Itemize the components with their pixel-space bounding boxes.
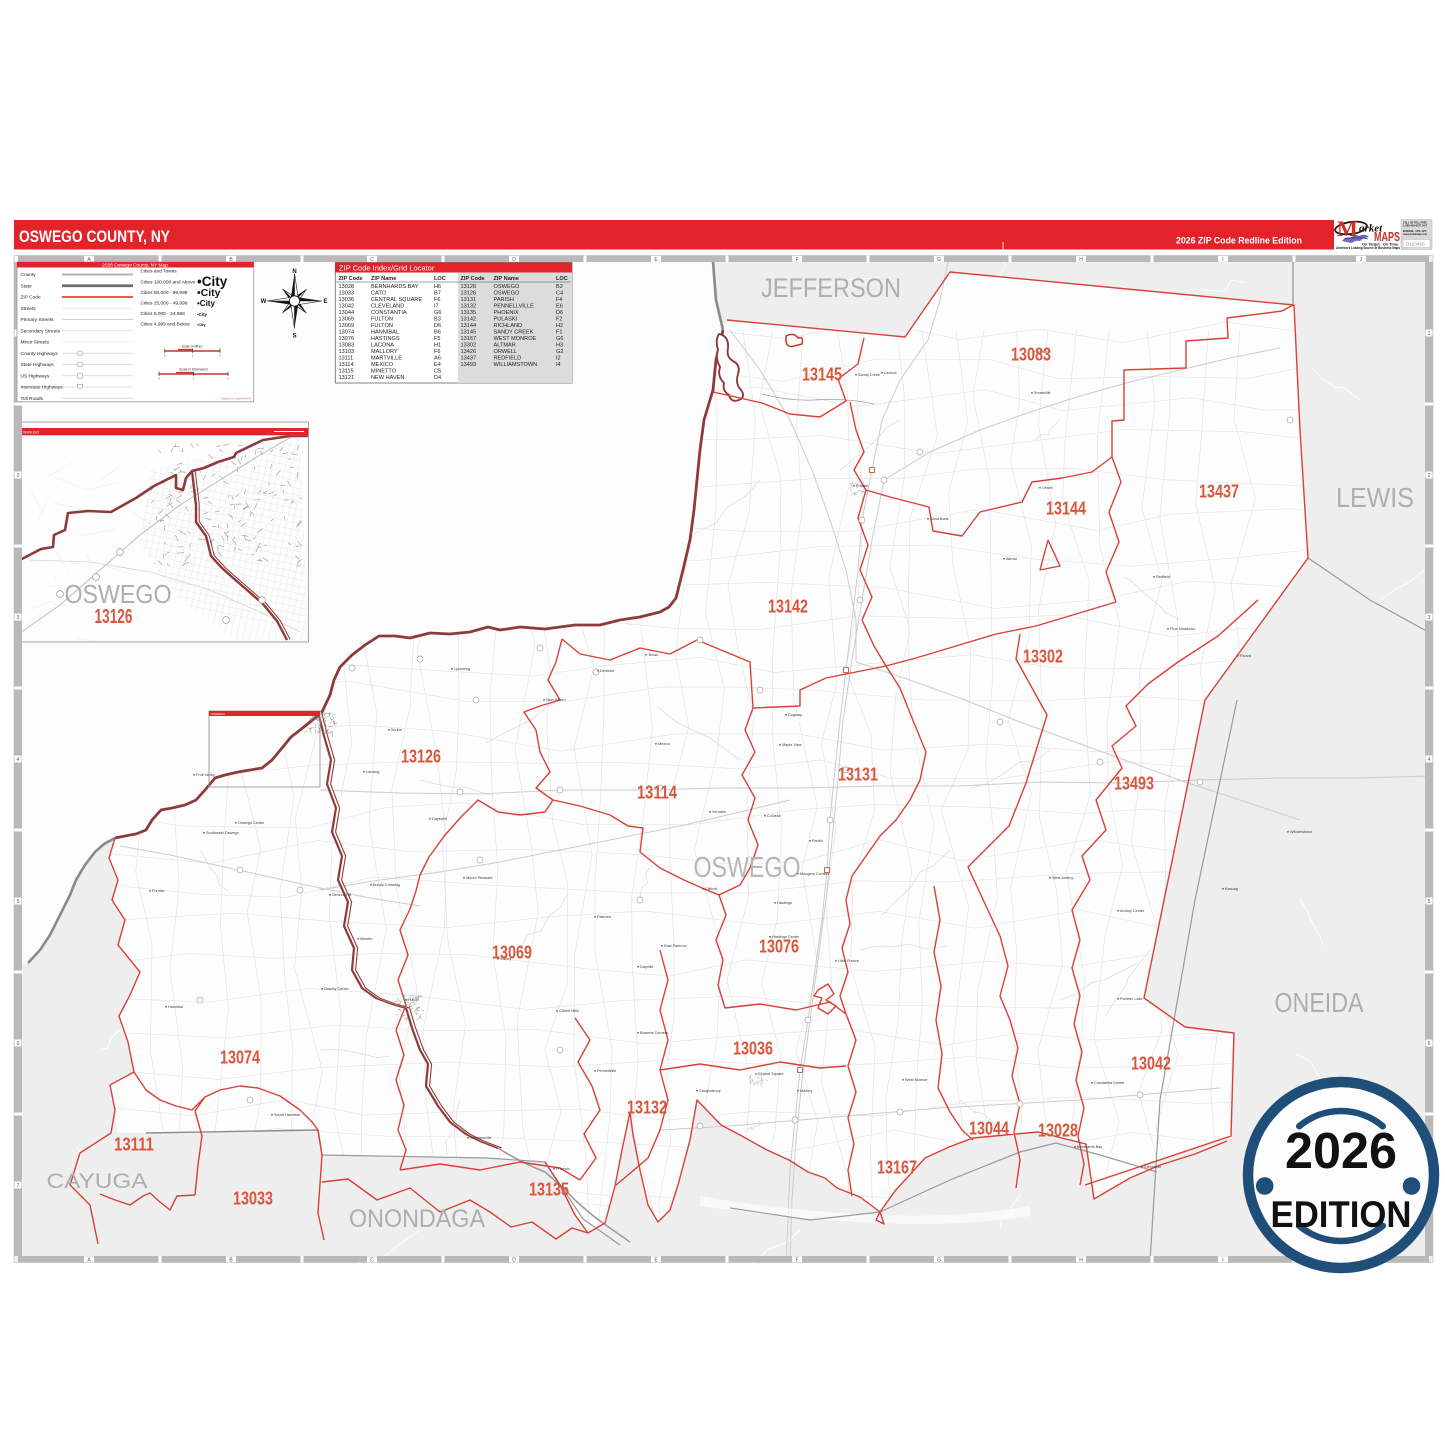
- svg-text:Bernhards Bay: Bernhards Bay: [1077, 1145, 1102, 1149]
- svg-text:13044: 13044: [339, 310, 355, 316]
- svg-text:Mungers Corners: Mungers Corners: [800, 872, 829, 876]
- svg-text:CAYUGA: CAYUGA: [47, 1170, 148, 1193]
- svg-text:PARISH: PARISH: [494, 297, 514, 303]
- svg-text:Streets: Streets: [21, 306, 37, 312]
- svg-text:Maple View: Maple View: [782, 743, 802, 747]
- svg-text:13142: 13142: [461, 316, 477, 322]
- svg-text:West Monroe: West Monroe: [905, 1078, 928, 1082]
- svg-text:13044: 13044: [969, 1119, 1009, 1139]
- svg-text:D123456: D123456: [1406, 242, 1425, 247]
- svg-text:Hastings: Hastings: [777, 901, 792, 905]
- svg-text:F2: F2: [556, 316, 563, 322]
- svg-text:13069: 13069: [492, 943, 532, 963]
- svg-text:CLEVELAND: CLEVELAND: [371, 303, 404, 309]
- svg-text:Seneca Hill: Seneca Hill: [332, 893, 351, 897]
- svg-text:Demster: Demster: [600, 669, 615, 673]
- svg-text:West Amboy: West Amboy: [1052, 876, 1073, 880]
- svg-text:•City: •City: [197, 323, 206, 327]
- svg-text:PHOENIX: PHOENIX: [494, 310, 519, 316]
- svg-text:13042: 13042: [1131, 1054, 1171, 1074]
- svg-text:I: I: [1222, 1257, 1223, 1263]
- svg-text:B3: B3: [434, 316, 441, 322]
- svg-text:New Haven: New Haven: [546, 698, 566, 702]
- svg-text:13142: 13142: [768, 597, 808, 617]
- svg-text:America's Leading Source of Bu: America's Leading Source of Business Map…: [1336, 246, 1400, 250]
- svg-text:2026 ZIP Code Redline Edition: 2026 ZIP Code Redline Edition: [1176, 236, 1302, 247]
- svg-text:G: G: [937, 257, 941, 263]
- svg-text:C5: C5: [434, 368, 441, 374]
- svg-text:OSWEGO: OSWEGO: [494, 290, 520, 296]
- svg-text:I7: I7: [434, 303, 439, 309]
- svg-text:F: F: [795, 257, 798, 263]
- svg-text:13135: 13135: [529, 1180, 569, 1200]
- svg-text:maps@mktmaps.com: maps@mktmaps.com: [1403, 233, 1428, 236]
- svg-text:•City: •City: [197, 287, 221, 299]
- svg-text:Dugway: Dugway: [788, 713, 802, 717]
- svg-text:Interstate Highways: Interstate Highways: [21, 385, 64, 391]
- svg-text:A6: A6: [434, 355, 441, 361]
- svg-text:OSWEGO: OSWEGO: [494, 284, 520, 290]
- svg-text:13028: 13028: [339, 284, 355, 290]
- svg-text:Gayville: Gayville: [640, 965, 654, 969]
- svg-text:Secondary Streets: Secondary Streets: [21, 328, 61, 334]
- svg-text:13083: 13083: [339, 342, 355, 348]
- svg-text:Mount Pleasant: Mount Pleasant: [466, 876, 493, 880]
- svg-text:B2: B2: [556, 284, 563, 290]
- svg-text:NEW HAVEN: NEW HAVEN: [371, 375, 404, 381]
- svg-text:Colosse: Colosse: [767, 814, 781, 818]
- svg-text:East Palermo: East Palermo: [664, 944, 687, 948]
- svg-text:State Highways: State Highways: [21, 362, 55, 368]
- svg-text:2: 2: [1428, 473, 1431, 479]
- svg-text:Cities 50,000 - 99,999: Cities 50,000 - 99,999: [141, 290, 188, 296]
- svg-text:6: 6: [1428, 1041, 1431, 1047]
- svg-text:13074: 13074: [220, 1048, 260, 1068]
- svg-text:G2: G2: [556, 349, 563, 355]
- svg-text:Furniss: Furniss: [152, 889, 165, 893]
- svg-text:3: 3: [1428, 615, 1431, 621]
- svg-text:13114: 13114: [339, 362, 354, 368]
- svg-text:C: C: [370, 1257, 374, 1263]
- svg-text:13131: 13131: [838, 765, 878, 785]
- svg-text:13076: 13076: [339, 336, 355, 342]
- svg-text:WEST MONROE: WEST MONROE: [494, 336, 537, 342]
- svg-text:13076: 13076: [759, 937, 799, 957]
- svg-text:BERNHARDS BAY: BERNHARDS BAY: [371, 284, 419, 290]
- svg-text:Clifford: Clifford: [705, 887, 717, 891]
- svg-text:13114: 13114: [637, 783, 677, 803]
- svg-text:3: 3: [17, 615, 20, 621]
- svg-text:SANDY CREEK: SANDY CREEK: [494, 329, 534, 335]
- svg-text:MEXICO: MEXICO: [371, 362, 394, 368]
- svg-text:Cities 100,000 and Above: Cities 100,000 and Above: [141, 280, 196, 286]
- svg-text:13167: 13167: [877, 1158, 917, 1178]
- svg-text:Cities 4,999 and Below: Cities 4,999 and Below: [141, 322, 191, 328]
- svg-text:•City: •City: [197, 312, 208, 317]
- svg-text:G6: G6: [434, 310, 441, 316]
- svg-text:D6: D6: [434, 323, 441, 329]
- svg-text:FULTON: FULTON: [371, 316, 393, 322]
- svg-text:Cities 25,000 - 49,999: Cities 25,000 - 49,999: [141, 301, 188, 307]
- svg-text:Amboy Center: Amboy Center: [1120, 909, 1145, 913]
- svg-text:Kasoag: Kasoag: [1225, 887, 1238, 891]
- svg-text:CENTRAL SQUARE: CENTRAL SQUARE: [371, 297, 422, 303]
- svg-text:13144: 13144: [1046, 499, 1086, 519]
- svg-text:Lacona: Lacona: [884, 371, 897, 375]
- svg-text:MALLORY: MALLORY: [371, 349, 398, 355]
- svg-text:13126: 13126: [461, 284, 477, 290]
- svg-text:13069: 13069: [339, 316, 355, 322]
- svg-text:13126: 13126: [401, 747, 441, 767]
- svg-text:HASTINGS: HASTINGS: [371, 336, 400, 342]
- svg-text:Verndon: Verndon: [712, 810, 726, 814]
- svg-text:ORWELL: ORWELL: [494, 349, 518, 355]
- svg-text:WILLIAMSTOWN: WILLIAMSTOWN: [494, 362, 538, 368]
- svg-text:13167: 13167: [461, 336, 477, 342]
- svg-text:Ricard: Ricard: [1240, 654, 1251, 658]
- svg-text:Mexico: Mexico: [658, 742, 670, 746]
- svg-text:13111: 13111: [114, 1135, 154, 1155]
- svg-text:S: S: [292, 334, 296, 340]
- svg-text:designed by MarketMAPS: designed by MarketMAPS: [221, 397, 251, 401]
- svg-text:ONONDAGA: ONONDAGA: [349, 1205, 485, 1233]
- svg-text:13115: 13115: [339, 368, 354, 374]
- svg-text:EDITION: EDITION: [1271, 1194, 1412, 1235]
- svg-text:G: G: [937, 1257, 941, 1263]
- svg-text:Caughdenoy: Caughdenoy: [699, 1089, 721, 1093]
- svg-text:Lycoming: Lycoming: [454, 667, 470, 671]
- svg-text:5: 5: [17, 899, 20, 905]
- svg-text:Cities and Towns: Cities and Towns: [141, 269, 178, 275]
- svg-text:13302: 13302: [461, 342, 477, 348]
- svg-text:H6: H6: [434, 284, 441, 290]
- svg-text:HANNIBAL: HANNIBAL: [371, 329, 399, 335]
- svg-text:Scriba: Scriba: [391, 728, 403, 732]
- svg-text:13135: 13135: [461, 310, 477, 316]
- svg-text:ZIP Name: ZIP Name: [494, 276, 519, 282]
- svg-text:13042: 13042: [339, 303, 355, 309]
- svg-text:OSWEGO: OSWEGO: [21, 430, 39, 435]
- svg-text:LEWIS: LEWIS: [1336, 482, 1414, 513]
- svg-text:F6: F6: [434, 349, 441, 355]
- svg-text:Redfield: Redfield: [1156, 575, 1170, 579]
- svg-text:13132: 13132: [627, 1098, 667, 1118]
- svg-text:13033: 13033: [233, 1189, 273, 1209]
- svg-text:13074: 13074: [339, 329, 355, 335]
- svg-text:13493: 13493: [461, 362, 477, 368]
- svg-text:E6: E6: [556, 303, 563, 309]
- svg-text:2: 2: [17, 473, 20, 479]
- svg-text:D6: D6: [556, 310, 563, 316]
- svg-text:Cities 5,000 - 24,999: Cities 5,000 - 24,999: [141, 311, 186, 317]
- svg-text:MINETTO: MINETTO: [371, 368, 397, 374]
- svg-text:OSWEGO: OSWEGO: [65, 579, 172, 609]
- svg-text:H: H: [1079, 1257, 1083, 1263]
- svg-text:6: 6: [17, 1041, 20, 1047]
- svg-text:RICHLAND: RICHLAND: [494, 323, 523, 329]
- svg-text:Toll Roads: Toll Roads: [21, 396, 44, 402]
- svg-text:Minor Streets: Minor Streets: [21, 340, 50, 346]
- svg-text:PULASKI: PULASKI: [494, 316, 518, 322]
- svg-text:ZIP Code: ZIP Code: [339, 276, 363, 282]
- svg-text:Bowens Corners: Bowens Corners: [640, 1031, 668, 1035]
- svg-text:13036: 13036: [733, 1039, 773, 1059]
- svg-text:13103: 13103: [339, 349, 355, 355]
- svg-text:Panther Lake: Panther Lake: [1120, 997, 1143, 1001]
- svg-text:Bundy Crossing: Bundy Crossing: [373, 883, 400, 887]
- svg-text:F6: F6: [434, 297, 441, 303]
- svg-text:13302: 13302: [1023, 647, 1063, 667]
- svg-text:13111: 13111: [339, 355, 354, 361]
- svg-text:B6: B6: [434, 329, 441, 335]
- svg-text:Phoenix: Phoenix: [556, 1167, 570, 1171]
- svg-text:13036: 13036: [339, 297, 355, 303]
- svg-text:Lansing: Lansing: [366, 770, 379, 774]
- svg-text:Pennellville: Pennellville: [597, 1069, 616, 1073]
- svg-text:ONEIDA: ONEIDA: [1275, 987, 1364, 1018]
- svg-text:Mallory: Mallory: [800, 1089, 812, 1093]
- svg-text:E: E: [323, 299, 327, 305]
- svg-text:County: County: [21, 272, 37, 278]
- svg-text:13126: 13126: [461, 290, 477, 296]
- svg-text:13145: 13145: [802, 365, 842, 385]
- svg-text:D4: D4: [434, 375, 441, 381]
- svg-text:13028: 13028: [1038, 1121, 1078, 1141]
- svg-text:PENNELLVILLE: PENNELLVILLE: [494, 303, 535, 309]
- svg-text:Constantia Center: Constantia Center: [1094, 1081, 1125, 1085]
- svg-text:F: F: [795, 1257, 798, 1263]
- svg-text:13132: 13132: [461, 303, 477, 309]
- svg-text:C: C: [370, 257, 374, 263]
- svg-text:2026: 2026: [1285, 1122, 1397, 1179]
- svg-text:N: N: [292, 269, 296, 275]
- svg-text:W: W: [261, 299, 267, 305]
- svg-text:LACONA: LACONA: [371, 342, 394, 348]
- svg-text:LOC: LOC: [556, 276, 568, 282]
- svg-text:D: D: [512, 1257, 516, 1263]
- svg-text:H3: H3: [556, 342, 563, 348]
- svg-text:Gilbert Mills: Gilbert Mills: [559, 1009, 579, 1013]
- svg-text:H1: H1: [434, 342, 441, 348]
- svg-text:Primary Streets: Primary Streets: [21, 317, 55, 323]
- svg-text:H2: H2: [556, 323, 563, 329]
- svg-text:13437: 13437: [1199, 482, 1239, 502]
- svg-text:B7: B7: [434, 290, 441, 296]
- svg-text:5: 5: [1428, 899, 1431, 905]
- svg-text:Parish: Parish: [812, 839, 823, 843]
- svg-text:ZIP Name: ZIP Name: [371, 276, 396, 282]
- svg-text:FULTON: FULTON: [371, 323, 393, 329]
- svg-text:Central Square: Central Square: [758, 1072, 784, 1076]
- svg-text:CONSTANTIA: CONSTANTIA: [371, 310, 407, 316]
- svg-text:Hannibal: Hannibal: [168, 1005, 183, 1009]
- svg-text:Palermo: Palermo: [597, 915, 611, 919]
- svg-text:ALTMAR: ALTMAR: [494, 342, 516, 348]
- svg-text:Little France: Little France: [838, 959, 859, 963]
- svg-text:2026 Oswego County, NY Map: 2026 Oswego County, NY Map: [102, 263, 168, 269]
- svg-text:State: State: [21, 283, 33, 289]
- svg-text:13437: 13437: [461, 355, 477, 361]
- svg-text:4: 4: [1428, 757, 1431, 763]
- svg-text:13493: 13493: [1114, 774, 1154, 794]
- svg-text:Southwest Oswego: Southwest Oswego: [206, 831, 239, 835]
- svg-text:Smartville: Smartville: [1034, 391, 1051, 395]
- svg-text:13426: 13426: [461, 349, 477, 355]
- svg-text:13144: 13144: [461, 323, 477, 329]
- svg-text:D: D: [512, 257, 516, 263]
- svg-text:MARTVILLE: MARTVILLE: [371, 355, 402, 361]
- svg-text:Fruit Valley: Fruit Valley: [196, 773, 215, 777]
- svg-text:•City: •City: [197, 299, 215, 308]
- svg-text:4: 4: [17, 757, 20, 763]
- svg-text:1-888-434-6277 24/7: 1-888-434-6277 24/7: [1403, 224, 1428, 227]
- svg-text:Hinmansville: Hinmansville: [470, 1136, 492, 1140]
- svg-text:Scale in Kilometers: Scale in Kilometers: [179, 368, 208, 372]
- svg-text:I4: I4: [556, 362, 561, 368]
- svg-text:H: H: [1079, 257, 1083, 263]
- svg-text:Pulaski: Pulaski: [856, 484, 868, 488]
- svg-text:Altmar: Altmar: [1006, 557, 1018, 561]
- svg-text:C4: C4: [556, 290, 563, 296]
- svg-text:Sand Bank: Sand Bank: [930, 517, 949, 521]
- svg-text:F1: F1: [556, 329, 563, 335]
- svg-text:1: 1: [1428, 331, 1431, 337]
- svg-text:JEFFERSON: JEFFERSON: [761, 273, 901, 303]
- svg-text:13121: 13121: [339, 375, 355, 381]
- svg-text:County Highways: County Highways: [21, 351, 59, 357]
- svg-text:Sandy Creek: Sandy Creek: [858, 373, 880, 377]
- svg-text:OSWEGO: OSWEGO: [694, 852, 801, 884]
- svg-text:G6: G6: [556, 336, 563, 342]
- svg-text:Scale in Miles: Scale in Miles: [182, 345, 203, 349]
- svg-text:I2: I2: [556, 355, 561, 361]
- svg-text:CATO: CATO: [371, 290, 387, 296]
- svg-text:Minetto: Minetto: [360, 937, 372, 941]
- svg-text:OSWEGO: OSWEGO: [211, 712, 226, 716]
- svg-text:13083: 13083: [1011, 345, 1051, 365]
- svg-text:I: I: [1222, 257, 1223, 263]
- svg-text:F4: F4: [556, 297, 563, 303]
- svg-text:13069: 13069: [339, 323, 355, 329]
- svg-text:13033: 13033: [339, 290, 355, 296]
- svg-text:US Highways: US Highways: [21, 373, 50, 379]
- svg-text:Texas: Texas: [648, 653, 658, 657]
- svg-text:OSWEGO COUNTY, NY: OSWEGO COUNTY, NY: [19, 228, 170, 246]
- svg-text:Pine Meadows: Pine Meadows: [1170, 627, 1195, 631]
- svg-text:ZIP Code: ZIP Code: [461, 276, 485, 282]
- svg-text:ZIP Code Index/Grid Locator: ZIP Code Index/Grid Locator: [339, 263, 435, 272]
- svg-text:LOC: LOC: [434, 276, 446, 282]
- svg-text:South Hannibal: South Hannibal: [274, 1113, 300, 1117]
- svg-text:Granby Center: Granby Center: [324, 987, 350, 991]
- svg-text:Oswego Center: Oswego Center: [238, 821, 265, 825]
- svg-text:Williamstown: Williamstown: [1290, 830, 1312, 834]
- svg-text:Cleveland: Cleveland: [1144, 1165, 1161, 1169]
- svg-text:Daysville: Daysville: [432, 817, 447, 821]
- svg-text:7: 7: [17, 1183, 20, 1189]
- svg-text:REDFIELD: REDFIELD: [494, 355, 522, 361]
- svg-text:F5: F5: [434, 336, 441, 342]
- svg-text:E4: E4: [434, 362, 441, 368]
- svg-text:ZIP Code: ZIP Code: [21, 295, 42, 301]
- svg-text:Orwell: Orwell: [1042, 486, 1053, 490]
- svg-text:13145: 13145: [461, 329, 477, 335]
- svg-text:13131: 13131: [461, 297, 477, 303]
- svg-text:13126: 13126: [95, 606, 133, 628]
